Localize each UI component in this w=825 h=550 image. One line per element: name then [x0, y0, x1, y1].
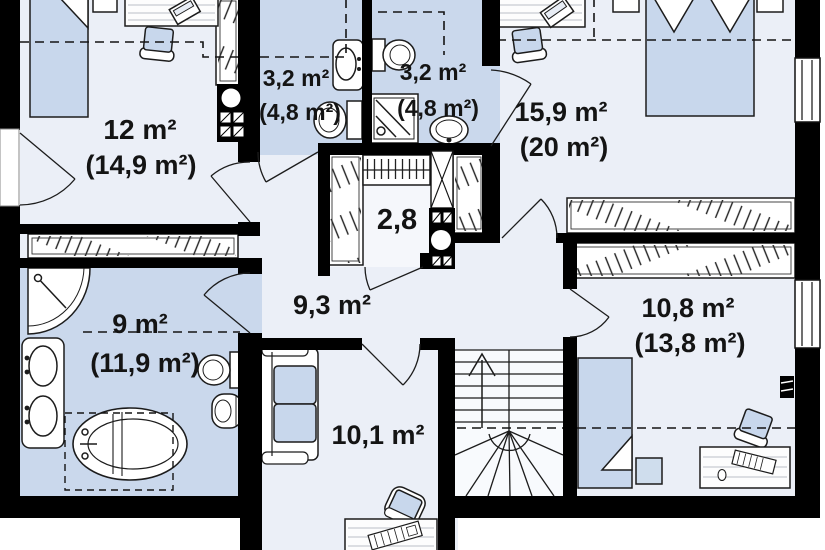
wall-interior	[362, 0, 372, 145]
room-label: 10,8 m²	[641, 293, 734, 323]
wall-interior	[563, 337, 577, 496]
room-label: 10,1 m²	[331, 420, 424, 450]
room-label: 2,8	[377, 204, 417, 236]
wall-interior	[318, 150, 330, 276]
room-label: 3,2 m²	[400, 59, 467, 85]
desk-icon	[125, 0, 218, 26]
wall-interior	[238, 222, 260, 236]
nightstand-icon	[757, 0, 783, 12]
hanger-rail	[363, 155, 430, 185]
bidet-icon	[212, 394, 242, 428]
room-label: (4,8 m²)	[397, 95, 479, 121]
wardrobe-hall-corridor	[28, 234, 238, 258]
balcony-door-sill	[0, 129, 19, 206]
staircase	[455, 350, 563, 496]
wall-interior	[238, 143, 258, 155]
wall-exterior-bottom-left	[0, 496, 262, 518]
wardrobe-bedroom-top-right	[567, 198, 795, 233]
vent-shaft-icon	[429, 151, 455, 269]
room-label: (13,8 m²)	[634, 328, 745, 358]
room-label: 9 m²	[112, 309, 168, 339]
wall-interior	[20, 258, 262, 268]
room-label: 12 m²	[103, 114, 176, 145]
wardrobe-closet-right	[453, 153, 485, 233]
wall-exterior-bottom-right	[438, 496, 820, 518]
radiator-icon	[780, 376, 794, 398]
double-bed-icon	[646, 0, 754, 116]
wall-interior	[453, 233, 500, 243]
nightstand-icon	[636, 458, 662, 484]
wall-interior	[240, 496, 262, 550]
floor-plan: 12 m² (14,9 m²) 3,2 m² (4,8 m²) 3,2 m² (…	[0, 0, 825, 550]
wall-interior	[20, 224, 240, 234]
mouse-icon	[718, 470, 726, 481]
wardrobe-bedroom-bottom-right	[567, 243, 795, 278]
wall-interior	[482, 0, 500, 66]
double-sink-icon	[22, 338, 64, 448]
room-label: (14,9 m²)	[85, 150, 196, 180]
window-icon	[795, 58, 820, 122]
wall-interior	[318, 143, 500, 155]
wall-interior	[238, 258, 262, 274]
bed-icon	[578, 358, 632, 488]
bathtub-icon	[73, 408, 187, 480]
sofa-icon	[258, 344, 318, 464]
floor-plan-page: 12 m² (14,9 m²) 3,2 m² (4,8 m²) 3,2 m² (…	[0, 0, 825, 550]
window-icon	[795, 280, 820, 348]
nightstand-icon	[93, 0, 117, 12]
wall-interior	[556, 233, 795, 243]
nightstand-icon	[613, 0, 639, 12]
chimney-icon	[217, 84, 247, 142]
wall-interior	[238, 333, 262, 496]
room-label: (4,8 m²)	[259, 99, 341, 125]
room-label: 15,9 m²	[514, 97, 607, 127]
wall-interior	[240, 338, 362, 350]
desk-icon	[700, 447, 790, 488]
desk-icon	[345, 519, 437, 550]
room-label: (11,9 m²)	[90, 348, 200, 378]
room-label: (20 m²)	[520, 132, 609, 162]
wall-exterior-left	[0, 205, 20, 518]
desk-icon	[495, 0, 585, 27]
wall-interior	[438, 338, 455, 550]
toilet-icon	[198, 352, 242, 388]
wardrobe-bedroom-top-left	[216, 0, 240, 85]
room-label: 3,2 m²	[263, 65, 330, 91]
room-label: 9,3 m²	[293, 290, 371, 320]
sink-icon	[333, 40, 363, 90]
wall-interior	[482, 144, 500, 243]
wall-interior	[563, 243, 577, 289]
wall-exterior-left	[0, 0, 20, 130]
chair-icon	[139, 26, 176, 61]
wardrobe-closet-left	[328, 153, 363, 265]
bed-icon	[30, 0, 88, 117]
